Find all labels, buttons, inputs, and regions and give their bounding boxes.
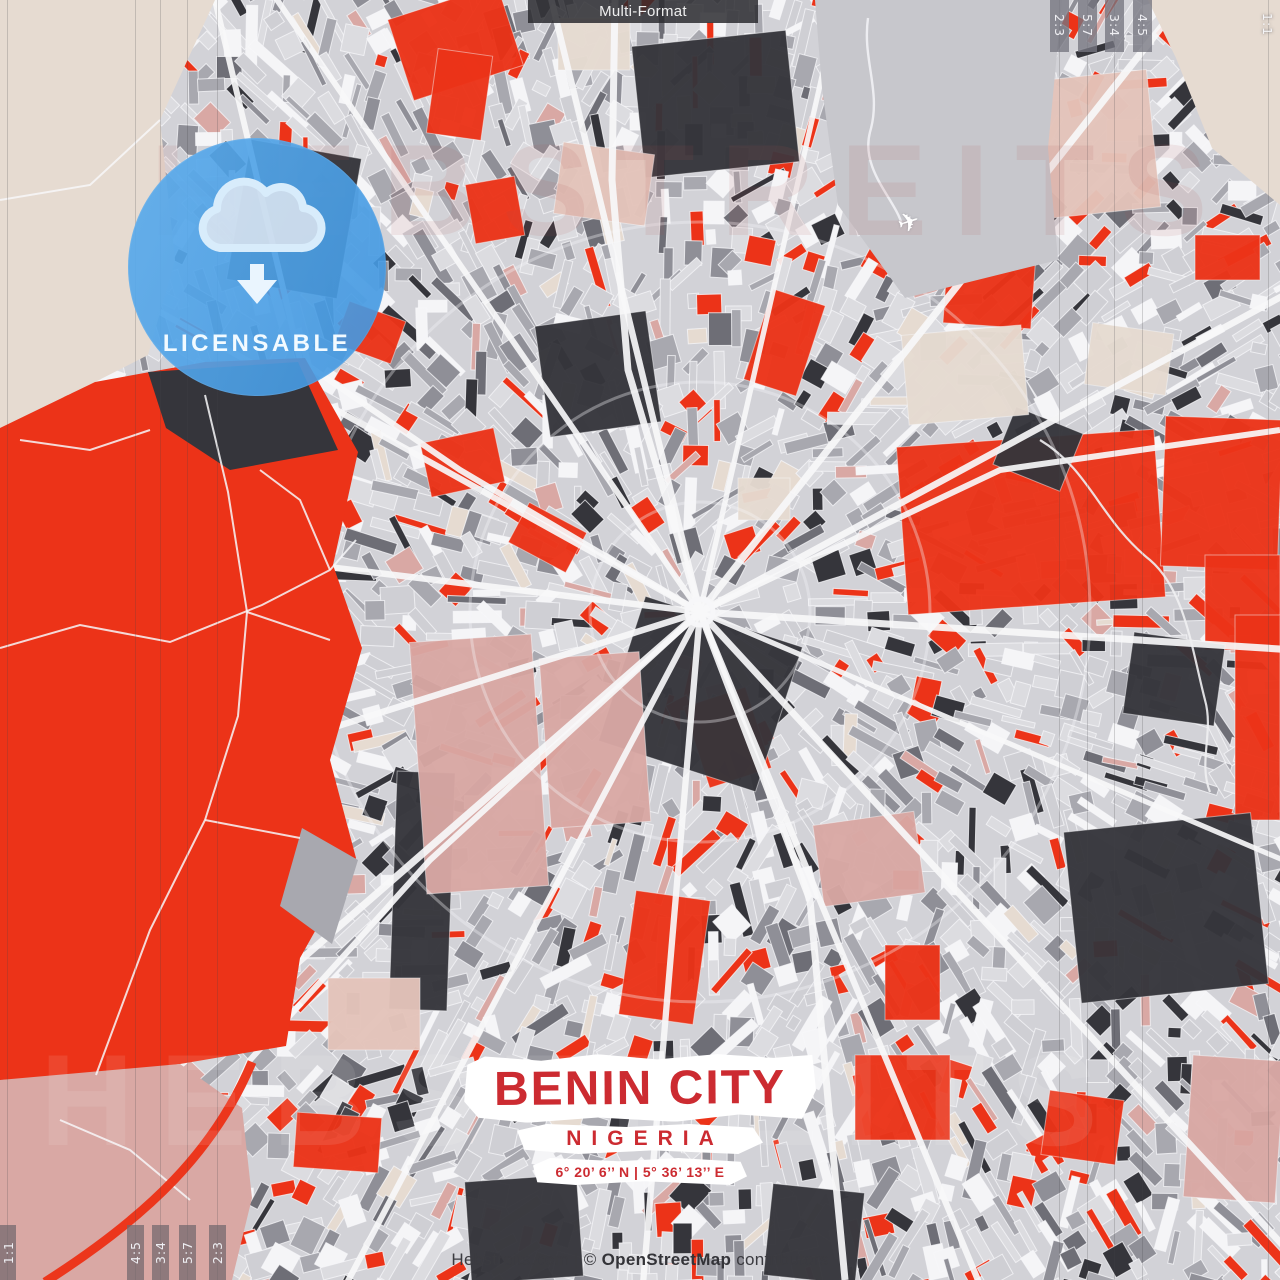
coordinates: 6° 20’ 6’’ N | 5° 36’ 13’’ E	[556, 1164, 725, 1180]
country-name-card: NIGERIA	[517, 1124, 763, 1154]
separator: |	[574, 1250, 579, 1269]
title-card: BENIN CITY NIGERIA 6° 20’ 6’’ N | 5° 36’…	[0, 1054, 1280, 1185]
city-name: BENIN CITY	[494, 1059, 786, 1116]
country-name: NIGERIA	[556, 1127, 724, 1151]
attribution-bar: Hebstreits.com | © OpenStreetMap contrib…	[0, 1250, 1280, 1270]
city-name-card: BENIN CITY	[464, 1053, 816, 1123]
osm-attribution: OpenStreetMap	[602, 1250, 732, 1269]
ratio-marker-2-3: 2:3	[1050, 0, 1069, 52]
copyright-symbol: ©	[584, 1250, 597, 1269]
format-banner-label: Multi-Format	[599, 3, 687, 20]
map-poster: HEBSTREITSHEBSTREITS ✈ Multi-Format 2:3 …	[0, 0, 1280, 1280]
ratio-marker-3-4: 3:4	[1105, 0, 1124, 52]
ratio-marker-5-7: 5:7	[1078, 0, 1097, 52]
licensable-badge[interactable]: LICENSABLE	[128, 138, 386, 396]
osm-contributors: contributors	[736, 1250, 828, 1269]
site-name: Hebstreits.com	[451, 1250, 569, 1269]
ratio-marker-1-1-top: 1:1	[1260, 13, 1275, 36]
licensable-label: LICENSABLE	[128, 330, 386, 358]
ratio-marker-4-5: 4:5	[1133, 0, 1152, 52]
cloud-download-icon	[182, 162, 332, 322]
coordinates-card: 6° 20’ 6’’ N | 5° 36’ 13’’ E	[533, 1158, 747, 1185]
format-banner: Multi-Format	[528, 0, 758, 23]
